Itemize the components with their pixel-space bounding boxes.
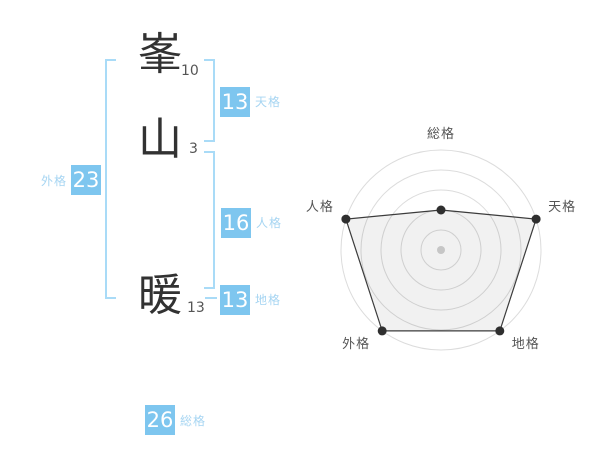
- name-character-2: 山: [137, 118, 183, 162]
- radar-data-point: [341, 215, 350, 224]
- gaikaku-value-box: 23: [71, 165, 101, 195]
- soukaku-value-box: 26: [145, 405, 175, 435]
- radar-axis-label: 地格: [512, 336, 540, 352]
- radar-axis-label: 総格: [427, 126, 455, 142]
- soukaku-label: 総格: [180, 415, 206, 428]
- radar-data-point: [495, 326, 504, 335]
- seimei-handan-result: 峯 10 山 3 暖 13 13 天格 16 人格 13 地格 23 外格 26…: [0, 0, 600, 470]
- stroke-count-1: 10: [181, 64, 199, 78]
- tenkaku-label: 天格: [255, 96, 281, 109]
- jinkaku-value-box: 16: [221, 208, 251, 238]
- radar-center-dot: [437, 246, 445, 254]
- chikaku-label: 地格: [255, 294, 281, 307]
- tenkaku-value-box: 13: [220, 87, 250, 117]
- jinkaku-label: 人格: [256, 217, 282, 230]
- radar-axis-label: 人格: [306, 199, 334, 215]
- chikaku-value-box: 13: [220, 285, 250, 315]
- chikaku-bracket-dash: [205, 297, 217, 299]
- fortune-radar-chart: 総格天格地格外格人格: [291, 110, 591, 370]
- radar-data-polygon: [346, 210, 536, 331]
- name-character-1: 峯: [137, 33, 183, 77]
- name-character-3: 暖: [137, 274, 183, 318]
- tenkaku-bracket-line: [213, 59, 215, 142]
- radar-axis-label: 天格: [548, 199, 576, 215]
- radar-data-point: [532, 215, 541, 224]
- tenkaku-bracket-tick-bottom: [204, 140, 215, 142]
- jinkaku-bracket-tick-top: [204, 151, 215, 153]
- stroke-count-2: 3: [189, 142, 198, 156]
- gaikaku-bracket-line: [105, 59, 107, 299]
- tenkaku-bracket-tick-top: [204, 59, 215, 61]
- gaikaku-bracket-tick-top: [105, 59, 116, 61]
- radar-axis-label: 外格: [342, 336, 370, 352]
- radar-data-point: [378, 326, 387, 335]
- stroke-count-3: 13: [187, 301, 205, 315]
- gaikaku-label: 外格: [41, 175, 67, 188]
- jinkaku-bracket-line: [213, 151, 215, 289]
- jinkaku-bracket-tick-bottom: [204, 287, 215, 289]
- radar-data-point: [437, 206, 446, 215]
- gaikaku-bracket-tick-bottom: [105, 297, 116, 299]
